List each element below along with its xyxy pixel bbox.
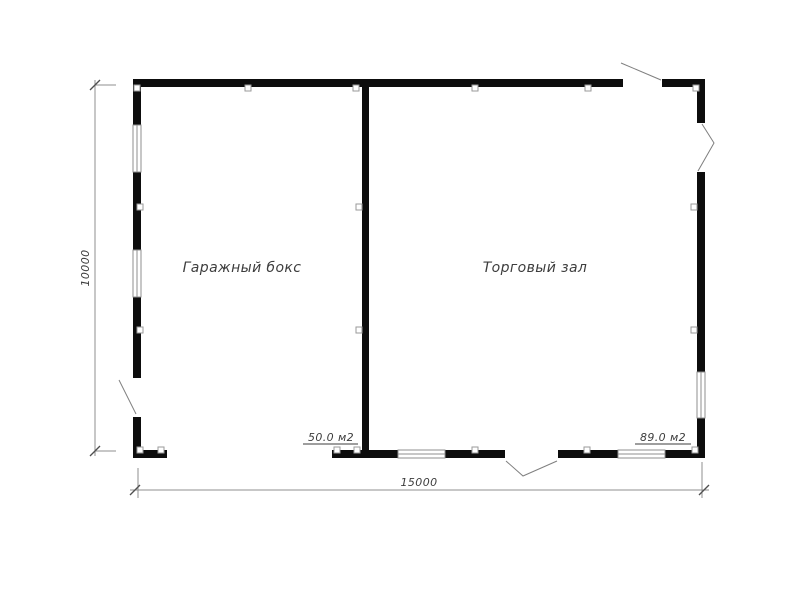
column-marker — [334, 447, 340, 453]
column-marker — [691, 204, 697, 210]
door-leaf-left — [119, 380, 136, 414]
wall-left-segment-3 — [133, 297, 141, 378]
column-marker — [354, 447, 360, 453]
column-marker — [585, 85, 591, 91]
column-marker — [472, 85, 478, 91]
column-marker — [137, 204, 143, 210]
windows — [133, 125, 705, 458]
column-marker — [245, 85, 251, 91]
floor-plan-drawing: 10000 15000 Гаражный бокс Торговый зал 5… — [0, 0, 800, 600]
dimension-width-label: 15000 — [401, 476, 438, 489]
wall-left-segment-2 — [133, 172, 141, 250]
column-marker — [692, 447, 698, 453]
column-marker — [134, 85, 140, 91]
wall-top-left-segment — [133, 79, 623, 87]
door-leaf-right — [698, 124, 714, 171]
window-left-2 — [133, 250, 141, 297]
window-bottom-1 — [398, 450, 445, 458]
wall-partition — [362, 87, 369, 450]
dimension-width: 15000 — [130, 462, 709, 498]
column-marker — [356, 327, 362, 333]
dimension-height-label: 10000 — [79, 250, 92, 287]
column-marker — [158, 447, 164, 453]
door-leaf-top — [621, 63, 661, 80]
room-area-garage: 50.0 м2 — [308, 431, 354, 444]
window-right-1 — [697, 372, 705, 418]
column-marker — [356, 204, 362, 210]
column-marker — [353, 85, 359, 91]
window-bottom-2 — [618, 450, 665, 458]
column-marker — [693, 85, 699, 91]
column-marker — [472, 447, 478, 453]
wall-bottom-segment-5 — [665, 450, 705, 458]
column-marker — [137, 447, 143, 453]
column-marker — [691, 327, 697, 333]
room-name-garage: Гаражный бокс — [183, 260, 302, 276]
room-labels: Гаражный бокс Торговый зал 50.0 м2 89.0 … — [183, 260, 691, 444]
window-left-1 — [133, 125, 141, 172]
door-leaf-bottom — [506, 461, 557, 476]
dimension-height: 10000 — [79, 80, 116, 456]
room-name-trading-hall: Торговый зал — [483, 260, 588, 276]
wall-right-segment-2 — [697, 172, 705, 372]
room-area-trading-hall: 89.0 м2 — [640, 431, 686, 444]
column-marker — [584, 447, 590, 453]
wall-bottom-segment-2 — [332, 450, 398, 458]
column-marker — [137, 327, 143, 333]
floor-plan-canvas: 10000 15000 Гаражный бокс Торговый зал 5… — [0, 0, 800, 600]
